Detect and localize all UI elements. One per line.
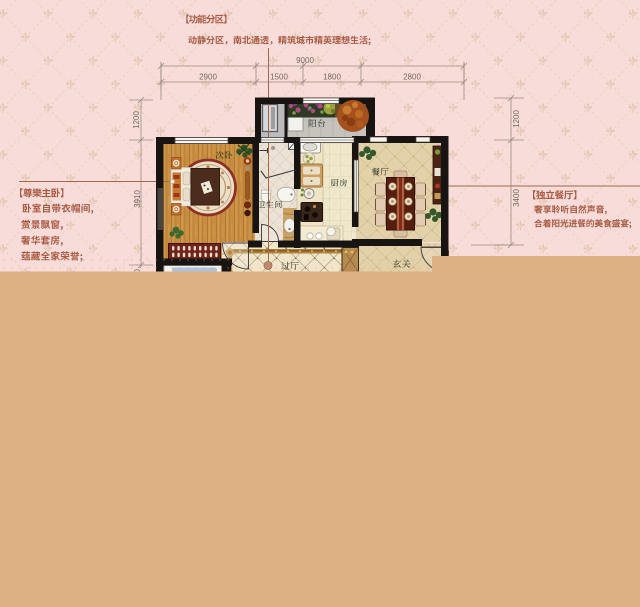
svg-text:9000: 9000: [296, 56, 314, 65]
svg-text:2800: 2800: [403, 73, 421, 82]
svg-text:1800: 1800: [323, 73, 341, 82]
svg-text:1500: 1500: [270, 73, 288, 82]
svg-text:1200: 1200: [512, 110, 521, 128]
svg-text:1200: 1200: [132, 111, 141, 129]
svg-text:3400: 3400: [512, 189, 521, 207]
svg-text:3910: 3910: [133, 190, 142, 208]
svg-text:2900: 2900: [199, 73, 217, 82]
